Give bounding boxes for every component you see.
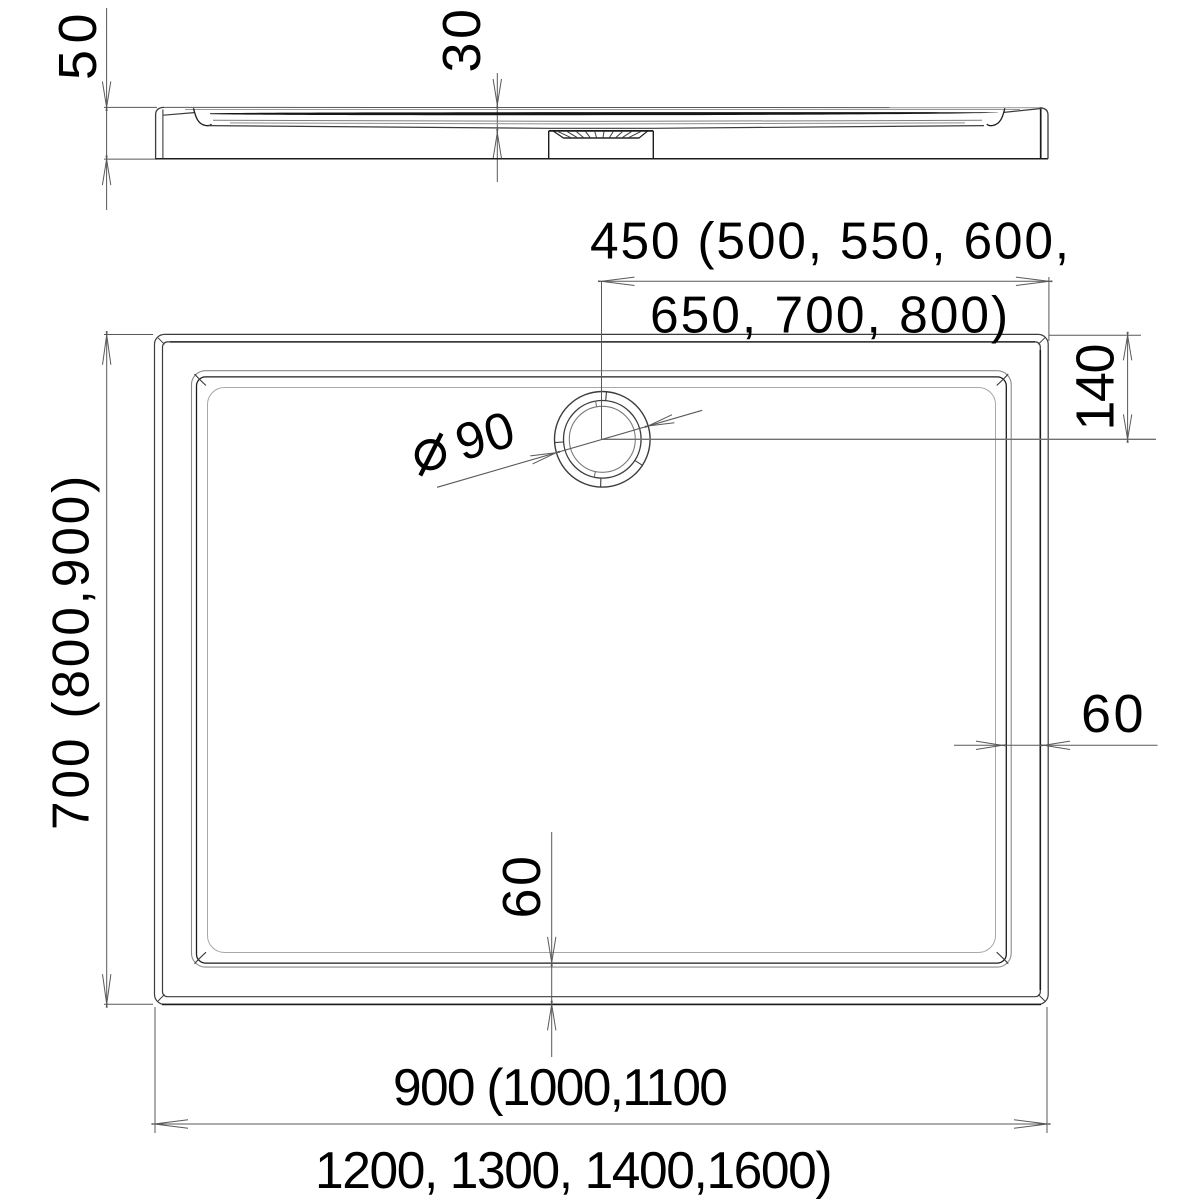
svg-text:30: 30: [432, 5, 492, 72]
svg-text:50: 50: [48, 7, 108, 80]
svg-text:60: 60: [492, 853, 552, 918]
svg-text:900 (1000,1100: 900 (1000,1100: [393, 1058, 726, 1116]
svg-text:650, 700, 800): 650, 700, 800): [650, 286, 1010, 344]
svg-text:1200, 1300, 1400,1600): 1200, 1300, 1400,1600): [315, 1141, 831, 1199]
svg-text:450 (500, 550, 600,: 450 (500, 550, 600,: [590, 212, 1071, 270]
svg-text:140: 140: [1066, 345, 1126, 431]
svg-text:700 (800,900): 700 (800,900): [42, 473, 100, 830]
svg-text:90: 90: [449, 399, 522, 471]
svg-text:60: 60: [1081, 684, 1146, 744]
